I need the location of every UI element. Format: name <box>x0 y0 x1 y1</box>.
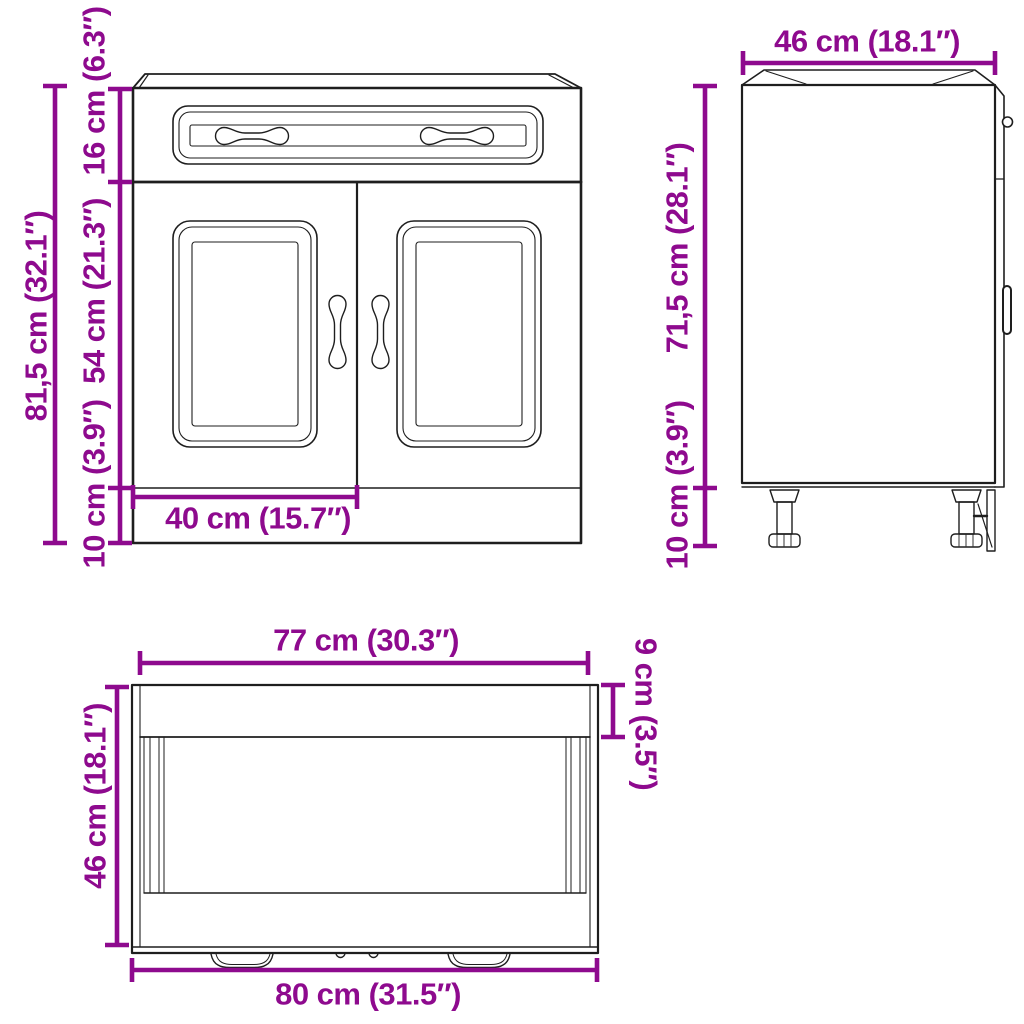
side-back-leg <box>769 490 800 547</box>
front-countertop <box>133 74 581 88</box>
side-front-panel <box>995 85 1004 487</box>
bottom-counter-depth-label: 9 cm (3.5″) <box>631 638 662 790</box>
side-front-leg <box>951 490 992 547</box>
bottom-outline <box>132 685 598 953</box>
side-body-height-label: 71,5 cm (28.1″) <box>662 143 693 354</box>
front-drawer-height-label: 16 cm (6.3″) <box>79 6 110 175</box>
front-plinth-height-label: 10 cm (3.9″) <box>79 399 110 568</box>
drawer-handle-right <box>421 128 494 145</box>
side-plinth-board <box>987 490 995 551</box>
side-drawer-handle-profile <box>1003 117 1013 127</box>
side-leg-height-label: 10 cm (3.9″) <box>662 400 693 569</box>
front-total-height-label: 81,5 cm (32.1″) <box>21 211 52 422</box>
door-handle-left <box>329 296 346 369</box>
front-door-left <box>173 221 346 447</box>
side-view-linework <box>742 70 1013 551</box>
bottom-dimension-lines <box>105 651 625 982</box>
bottom-inner-width-label: 77 cm (30.3″) <box>273 625 459 656</box>
drawer-handle-left <box>216 128 289 145</box>
front-door-width-label: 40 cm (15.7″) <box>165 503 351 534</box>
bottom-total-width-label: 80 cm (31.5″) <box>275 979 461 1010</box>
front-drawer <box>173 106 543 164</box>
bottom-view-linework <box>132 685 598 968</box>
bottom-leg-tabs <box>211 954 510 968</box>
front-view-linework <box>133 74 581 543</box>
front-door-height-label: 54 cm (21.3″) <box>79 198 110 384</box>
side-door-handle-profile <box>1003 286 1011 334</box>
bottom-depth-label: 46 cm (18.1″) <box>80 703 111 889</box>
front-door-right <box>372 221 541 447</box>
side-dimension-lines <box>693 51 995 546</box>
dimension-diagram: 81,5 cm (32.1″) 16 cm (6.3″) 54 cm (21.3… <box>0 0 1024 1024</box>
technical-drawing <box>0 0 1024 1024</box>
side-cabinet-body <box>742 85 995 483</box>
side-depth-label: 46 cm (18.1″) <box>774 26 960 57</box>
door-handle-right <box>372 296 389 369</box>
